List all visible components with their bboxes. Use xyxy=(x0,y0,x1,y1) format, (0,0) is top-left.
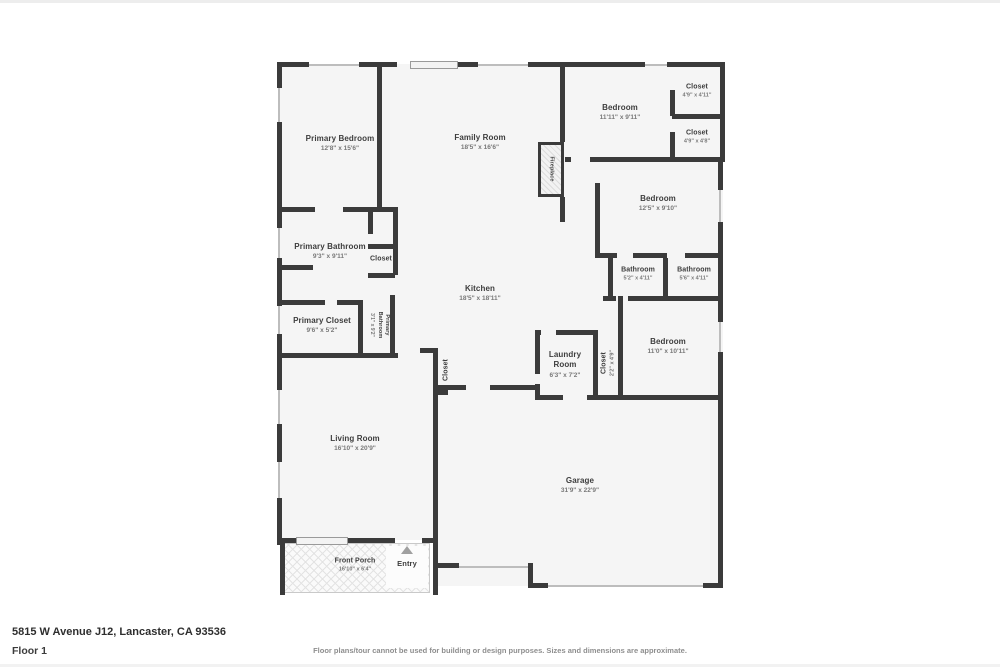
wall xyxy=(595,253,617,258)
room-label-garage: Garage 31'9" x 22'9" xyxy=(561,476,599,496)
room-name: Bedroom xyxy=(639,194,677,204)
room-dims: 18'5" x 18'11" xyxy=(459,295,500,303)
wall xyxy=(535,330,540,374)
room-name: Fireplace xyxy=(547,156,554,181)
wall xyxy=(618,395,723,400)
room-label-front-porch: Front Porch 16'10" x 6'4" xyxy=(335,556,376,573)
room-dims: 2'2" x 4'9" xyxy=(609,350,616,376)
wall xyxy=(718,352,723,395)
floor-plan-page: Primary Bedroom 12'8" x 15'6" Family Roo… xyxy=(0,0,1000,667)
room-dims: 12'5" x 9'10" xyxy=(639,205,677,213)
sliding-door xyxy=(410,61,458,69)
wall xyxy=(277,122,282,228)
window xyxy=(278,462,280,498)
wall xyxy=(490,385,537,390)
room-fill xyxy=(280,390,435,540)
room-name: Garage xyxy=(561,476,599,486)
wall xyxy=(560,62,565,142)
wall xyxy=(433,563,459,568)
wall xyxy=(277,207,315,212)
room-label-bedroom-top: Bedroom 11'11" x 9'11" xyxy=(600,103,641,123)
room-name: Closet xyxy=(683,82,712,91)
room-label-bathroom-1: Bathroom 5'2" x 4'11" xyxy=(621,265,655,282)
wall xyxy=(368,212,373,234)
room-name: Entry xyxy=(397,559,417,569)
wall xyxy=(377,62,382,212)
garage-door xyxy=(459,566,528,568)
room-label-bedroom-back: Bedroom 11'0" x 10'11" xyxy=(647,337,688,357)
room-dims: 18'5" x 16'6" xyxy=(454,144,505,152)
room-label-laundry-room: Laundry Room 6'3" x 7'2" xyxy=(541,350,589,380)
wall xyxy=(438,385,466,390)
wall xyxy=(720,62,725,157)
wall xyxy=(433,390,448,395)
wall xyxy=(390,295,395,358)
wall xyxy=(603,296,616,301)
room-name: Primary Closet xyxy=(293,316,351,326)
top-divider xyxy=(0,0,1000,3)
room-dims: 5'6" x 4'11" xyxy=(677,275,711,282)
room-dims: 5'2" x 4'11" xyxy=(621,275,655,282)
room-name: Primary Bedroom xyxy=(306,134,375,144)
disclaimer-text: Floor plans/tour cannot be used for buil… xyxy=(0,646,1000,655)
wall xyxy=(628,296,723,301)
room-name: Bathroom xyxy=(621,265,655,274)
garage-door xyxy=(548,585,703,587)
wall xyxy=(556,330,598,335)
room-dims: 6'3" x 7'2" xyxy=(541,372,589,380)
room-label-fireplace: Fireplace xyxy=(547,156,554,181)
room-dims: 16'10" x 20'9" xyxy=(330,445,380,453)
wall xyxy=(595,183,600,253)
room-name: Closet xyxy=(684,128,710,137)
wall xyxy=(672,114,722,119)
room-dims: 4'9" x 4'11" xyxy=(683,92,712,99)
room-dims: 11'11" x 9'11" xyxy=(600,114,641,122)
wall xyxy=(670,132,675,157)
room-label-closet-kitchen: Closet xyxy=(441,359,450,381)
sliding-door xyxy=(296,537,348,545)
wall xyxy=(703,583,723,588)
wall xyxy=(560,197,565,222)
room-label-bedroom-right: Bedroom 12'5" x 9'10" xyxy=(639,194,677,214)
wall xyxy=(420,348,438,353)
room-label-primary-closet: Primary Closet 9'6" x 5'2" xyxy=(293,316,351,336)
wall xyxy=(718,222,723,296)
wall xyxy=(685,253,723,258)
wall xyxy=(633,253,667,258)
wall xyxy=(670,90,675,116)
room-dims: 31'9" x 22'9" xyxy=(561,487,599,495)
room-name: Closet xyxy=(599,350,608,376)
room-dims: 9'6" x 5'2" xyxy=(293,327,351,335)
window xyxy=(278,306,280,334)
wall xyxy=(280,543,285,595)
room-label-primary-bathroom-2: Primary Bathroom 3'1" x 9'2" xyxy=(368,304,390,346)
room-label-kitchen: Kitchen 18'5" x 18'11" xyxy=(459,284,500,304)
room-label-family-room: Family Room 18'5" x 16'6" xyxy=(454,133,505,153)
room-name: Primary Bathroom xyxy=(294,242,365,252)
wall xyxy=(277,265,313,270)
room-name: Laundry Room xyxy=(541,350,589,371)
wall xyxy=(368,273,395,278)
room-label-closet-top-1: Closet 4'9" x 4'11" xyxy=(683,82,712,99)
room-label-living-room: Living Room 16'10" x 20'9" xyxy=(330,434,380,454)
room-label-closet-primary-bath: Closet xyxy=(370,254,392,263)
wall xyxy=(608,253,613,301)
entry-arrow-icon xyxy=(401,546,413,554)
window xyxy=(645,64,667,66)
wall xyxy=(590,157,725,162)
room-label-closet-top-2: Closet 4'9" x 4'8" xyxy=(684,128,710,145)
room-label-entry: Entry xyxy=(397,559,417,569)
wall xyxy=(280,353,398,358)
wall xyxy=(358,300,363,358)
room-name: Bedroom xyxy=(600,103,641,113)
wall xyxy=(277,62,282,88)
room-fill xyxy=(535,300,723,395)
room-name: Living Room xyxy=(330,434,380,444)
window xyxy=(719,322,721,352)
room-dims: 9'3" x 9'11" xyxy=(294,253,365,261)
window xyxy=(278,228,280,258)
room-label-bathroom-2: Bathroom 5'6" x 4'11" xyxy=(677,265,711,282)
room-name: Family Room xyxy=(454,133,505,143)
window xyxy=(278,88,280,122)
room-dims: 12'8" x 15'6" xyxy=(306,145,375,153)
wall xyxy=(663,258,668,296)
wall xyxy=(565,157,571,162)
window xyxy=(478,64,528,66)
window xyxy=(719,190,721,222)
room-dims: 11'0" x 10'11" xyxy=(647,348,688,356)
wall xyxy=(618,296,623,395)
wall xyxy=(277,334,282,390)
room-name: Closet xyxy=(370,254,392,263)
room-name: Bathroom xyxy=(677,265,711,274)
window xyxy=(309,64,359,66)
wall xyxy=(458,62,478,67)
room-label-primary-bathroom: Primary Bathroom 9'3" x 9'11" xyxy=(294,242,365,262)
wall xyxy=(535,395,563,400)
wall xyxy=(528,583,548,588)
room-name: Closet xyxy=(441,359,450,381)
address-text: 5815 W Avenue J12, Lancaster, CA 93536 xyxy=(12,626,226,638)
wall xyxy=(282,300,325,305)
wall xyxy=(565,62,645,67)
wall xyxy=(348,538,395,543)
room-name: Front Porch xyxy=(335,556,376,565)
room-fill xyxy=(280,64,565,390)
room-label-closet-laundry: Closet 2'2" x 4'9" xyxy=(599,350,616,376)
wall xyxy=(277,424,282,462)
wall xyxy=(377,207,398,212)
wall xyxy=(393,207,398,275)
wall xyxy=(667,62,725,67)
room-label-primary-bedroom: Primary Bedroom 12'8" x 15'6" xyxy=(306,134,375,154)
room-name: Kitchen xyxy=(459,284,500,294)
room-dims: 16'10" x 6'4" xyxy=(335,566,376,573)
wall xyxy=(718,390,723,588)
window xyxy=(278,390,280,424)
room-dims: 3'1" x 9'2" xyxy=(368,304,375,346)
wall xyxy=(422,538,434,543)
room-dims: 4'9" x 4'8" xyxy=(684,138,710,145)
room-name: Primary Bathroom xyxy=(376,304,390,346)
room-name: Bedroom xyxy=(647,337,688,347)
wall xyxy=(593,330,598,400)
